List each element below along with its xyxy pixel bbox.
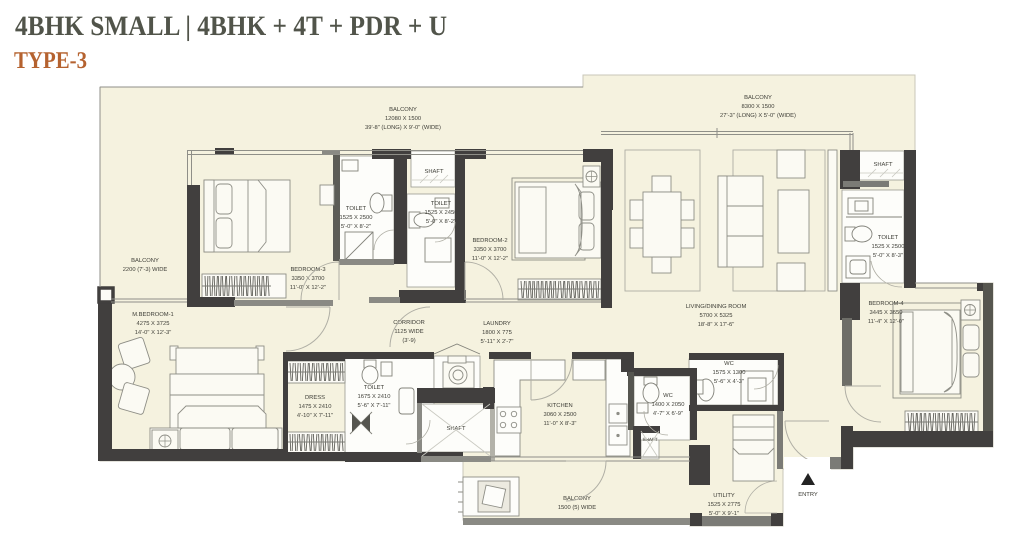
svg-text:WC: WC: [724, 360, 734, 367]
svg-text:5'-0" X 8'-3": 5'-0" X 8'-3": [873, 252, 903, 259]
svg-text:1525 X 2450: 1525 X 2450: [425, 209, 458, 216]
svg-text:(3'-9): (3'-9): [402, 337, 415, 344]
svg-text:1575 X 1300: 1575 X 1300: [713, 369, 746, 376]
svg-text:1800 X 775: 1800 X 775: [482, 329, 512, 336]
svg-text:4BHK SMALL | 4BHK + 4T + PDR +: 4BHK SMALL | 4BHK + 4T + PDR + U: [15, 11, 447, 42]
svg-text:TOILET: TOILET: [364, 384, 385, 391]
svg-text:1500 (5) WIDE: 1500 (5) WIDE: [558, 504, 596, 511]
svg-text:LIVING/DINING ROOM: LIVING/DINING ROOM: [686, 303, 747, 310]
svg-text:BALCONY: BALCONY: [131, 257, 159, 264]
svg-text:11'-0" X 12'-2": 11'-0" X 12'-2": [472, 255, 508, 262]
svg-text:TOILET: TOILET: [431, 200, 452, 207]
svg-text:14'-0" X 12'-3": 14'-0" X 12'-3": [135, 329, 172, 336]
svg-text:TYPE-3: TYPE-3: [14, 48, 87, 74]
svg-text:11'-4" X 12'-0": 11'-4" X 12'-0": [868, 318, 904, 325]
svg-text:1125 WIDE: 1125 WIDE: [394, 328, 423, 335]
svg-text:BALCONY: BALCONY: [744, 94, 772, 101]
svg-text:BALCONY: BALCONY: [389, 106, 417, 113]
svg-text:SHAFT: SHAFT: [446, 425, 465, 432]
svg-text:TOILET: TOILET: [346, 205, 367, 212]
svg-text:UTILITY: UTILITY: [713, 493, 735, 499]
svg-text:SHAFT: SHAFT: [642, 437, 657, 442]
svg-text:2200 (7'-3) WIDE: 2200 (7'-3) WIDE: [123, 266, 168, 273]
svg-text:3445 X 3650: 3445 X 3650: [870, 309, 903, 316]
svg-text:27'-3" (LONG) X 5'-0" (WIDE): 27'-3" (LONG) X 5'-0" (WIDE): [720, 112, 796, 119]
svg-text:5'-11" X 2'-7": 5'-11" X 2'-7": [481, 338, 514, 345]
svg-text:SHAFT: SHAFT: [873, 161, 892, 168]
svg-text:5'-0" X 8'-2": 5'-0" X 8'-2": [426, 218, 456, 225]
svg-text:39'-8" (LONG) X 9'-0" (WIDE): 39'-8" (LONG) X 9'-0" (WIDE): [365, 124, 441, 131]
svg-text:1525 X 2775: 1525 X 2775: [708, 501, 741, 508]
svg-text:5'-0" X 8'-2": 5'-0" X 8'-2": [341, 223, 371, 230]
svg-text:ENTRY: ENTRY: [798, 492, 818, 498]
svg-text:8300 X 1500: 8300 X 1500: [742, 103, 775, 110]
svg-text:1400 X 2050: 1400 X 2050: [652, 401, 685, 408]
svg-text:3060 X 2500: 3060 X 2500: [544, 411, 577, 418]
svg-text:3350 X 3700: 3350 X 3700: [474, 246, 507, 253]
svg-text:TOILET: TOILET: [878, 234, 899, 241]
svg-text:M.BEDROOM-1: M.BEDROOM-1: [132, 311, 174, 318]
svg-text:4'-10" X 7'-11": 4'-10" X 7'-11": [297, 412, 333, 419]
svg-text:5700 X 5325: 5700 X 5325: [700, 312, 733, 319]
svg-text:5'-6" X 4'-3": 5'-6" X 4'-3": [714, 378, 744, 385]
svg-text:WC: WC: [663, 392, 673, 399]
svg-text:12080 X 1500: 12080 X 1500: [385, 115, 421, 122]
svg-text:11'-0" X 12'-2": 11'-0" X 12'-2": [290, 284, 326, 291]
svg-text:BEDROOM-2: BEDROOM-2: [472, 237, 507, 244]
svg-text:1525 X 2500: 1525 X 2500: [872, 243, 905, 250]
svg-text:18'-8" X 17'-6": 18'-8" X 17'-6": [698, 321, 735, 328]
svg-text:11'-0" X 8'-3": 11'-0" X 8'-3": [544, 420, 577, 427]
svg-text:4'-7" X 6'-9": 4'-7" X 6'-9": [653, 410, 683, 417]
svg-text:1675 X 2410: 1675 X 2410: [358, 393, 391, 400]
svg-text:SHAFT: SHAFT: [424, 168, 443, 175]
svg-text:LAUNDRY: LAUNDRY: [483, 321, 511, 327]
svg-text:BEDROOM-4: BEDROOM-4: [868, 300, 904, 307]
svg-text:5'-0" X 9'-1": 5'-0" X 9'-1": [709, 510, 739, 517]
svg-text:5'-6" X 7'-11": 5'-6" X 7'-11": [358, 402, 391, 409]
svg-text:1525 X 2500: 1525 X 2500: [340, 214, 373, 221]
svg-text:DRESS: DRESS: [305, 394, 325, 401]
svg-text:4275 X 3725: 4275 X 3725: [137, 320, 170, 327]
svg-text:1475 X 2410: 1475 X 2410: [299, 403, 332, 410]
svg-text:KITCHEN: KITCHEN: [547, 402, 572, 409]
